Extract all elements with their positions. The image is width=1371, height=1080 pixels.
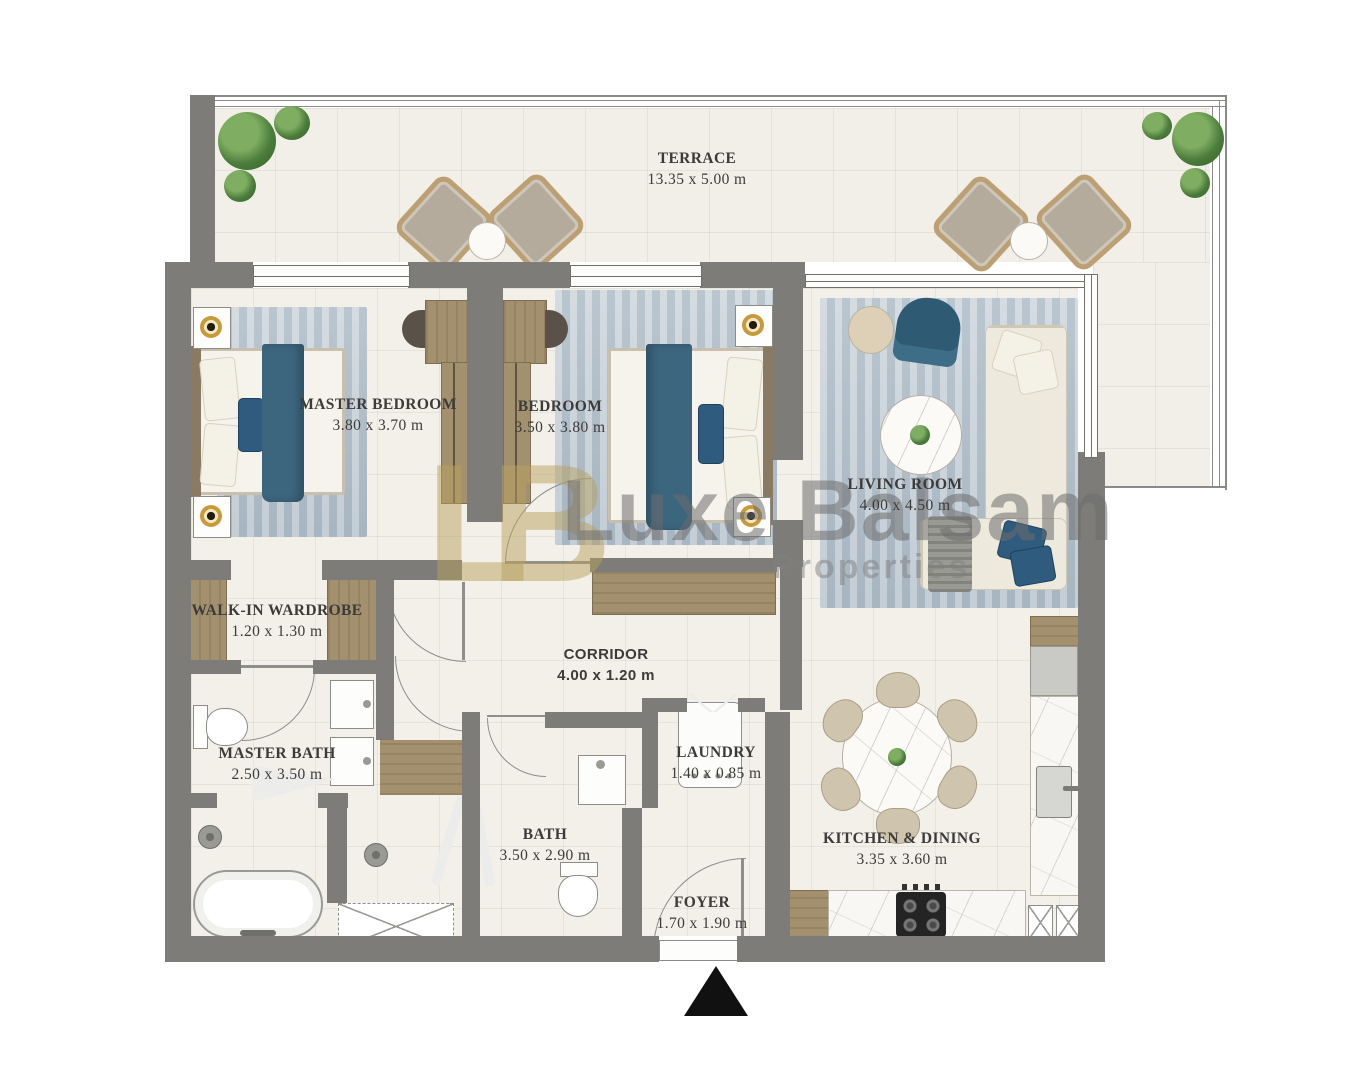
room-label-master-bath: MASTER BATH2.50 x 3.50 m [157, 743, 397, 785]
terrace-right-wing-floor [1093, 262, 1210, 488]
wall-laundry-top-b [738, 698, 765, 712]
bedroom-dresser [592, 567, 776, 615]
shower-head [364, 843, 388, 867]
wall-kitchen-stub [780, 545, 802, 710]
gas-stove [896, 892, 946, 937]
room-label-bath: BATH3.50 x 2.90 m [425, 824, 665, 866]
living-side-table [848, 306, 894, 354]
master-bed-pillow [199, 423, 240, 488]
terrace-railing-line [1225, 95, 1227, 490]
sofa-pillow [1012, 348, 1059, 395]
vanity-faucet [363, 700, 371, 708]
wall-wardrobe-right [376, 560, 394, 740]
kitchen-appliance [1028, 905, 1053, 940]
door-leaf [487, 715, 545, 717]
wall-bedroom-bottom [590, 558, 777, 572]
room-label-laundry: LAUNDRY1.40 x 0.85 m [596, 742, 836, 784]
wall-bath-top [545, 712, 642, 728]
room-label-bedroom: BEDROOM3.50 x 3.80 m [440, 396, 680, 438]
coffee-table-plant [910, 425, 930, 445]
bedroom-nightstand-lamp [740, 505, 762, 527]
plant [218, 112, 276, 170]
room-label-kitchen-dining: KITCHEN & DINING3.35 x 3.60 m [782, 828, 1022, 870]
master-nightstand-lamp [200, 505, 222, 527]
plant [274, 106, 310, 140]
room-label-living-room: LIVING ROOM4.00 x 4.50 m [785, 474, 1025, 516]
window-master-bedroom [253, 265, 410, 287]
plant [1142, 112, 1172, 140]
terrace-railing-end [1093, 486, 1227, 488]
dining-chair [876, 672, 920, 708]
dining-table-plant [888, 748, 906, 766]
wall-tubroom-right [327, 803, 347, 903]
wall-bottom-right [737, 936, 1105, 962]
wall-bedroom-right [773, 288, 803, 460]
bathtub [193, 870, 323, 938]
room-label-terrace: TERRACE13.35 x 5.00 m [577, 148, 817, 190]
terrace-side-table [1010, 222, 1048, 260]
refrigerator [1030, 646, 1078, 696]
bedroom-accent-pillow [698, 404, 724, 464]
wall-top-a [191, 262, 253, 288]
plant [1172, 112, 1224, 166]
wall-bottom-left [165, 936, 659, 962]
master-bed-pillow [199, 356, 241, 421]
master-nightstand-lamp [200, 316, 222, 338]
wall-top-c [700, 262, 805, 288]
terrace-railing-line [213, 106, 1227, 107]
bedroom-nightstand-lamp [742, 314, 764, 336]
shower-head [198, 825, 222, 849]
wall-right [1078, 452, 1105, 962]
wall-masterbath-bottom-a [165, 793, 217, 808]
room-label-foyer: FOYER1.70 x 1.90 m [582, 892, 822, 934]
stove-knobs [902, 884, 940, 890]
window-living-right [1084, 274, 1098, 458]
master-toilet [206, 708, 248, 746]
room-label-corridor: CORRIDOR4.00 x 1.20 m [486, 644, 726, 686]
wall-masterbath-top-a [165, 660, 241, 674]
room-label-walk-in-wardrobe: WALK-IN WARDROBE1.20 x 1.30 m [157, 600, 397, 642]
bedroom-bed-pillow [720, 356, 763, 431]
window-living-top [805, 274, 1089, 288]
terrace-railing-line [1219, 100, 1220, 488]
desk-bedroom-side [503, 300, 547, 364]
plant [1180, 168, 1210, 198]
terrace-railing-line [1212, 106, 1213, 488]
sofa-throw-blanket [928, 516, 972, 592]
wall-master-bottom-a [165, 560, 231, 580]
wall-top-b [408, 262, 570, 288]
entrance-arrow [684, 966, 748, 1016]
door-leaf [505, 561, 590, 564]
terrace-side-table [468, 222, 506, 260]
kitchen-sink-faucet [1063, 786, 1079, 791]
window-bedroom [570, 265, 702, 287]
wall-terrace-left [190, 95, 215, 265]
floor-plan: LB Luxe Balsam Properties TERRACE13.35 x… [0, 0, 1371, 1080]
plant [224, 170, 256, 202]
wall-laundry-top-a [642, 698, 687, 712]
kitchen-sink [1036, 766, 1072, 818]
sofa-accent-pillow [1009, 545, 1057, 588]
wall-masterbath-top-b [313, 660, 394, 674]
terrace-railing-line [213, 100, 1227, 101]
terrace-railing-line [213, 95, 1227, 97]
desk-master-side [425, 300, 469, 364]
door-leaf [241, 665, 313, 668]
kitchen-upper-cabinet [1030, 616, 1080, 648]
door-leaf [462, 582, 465, 660]
